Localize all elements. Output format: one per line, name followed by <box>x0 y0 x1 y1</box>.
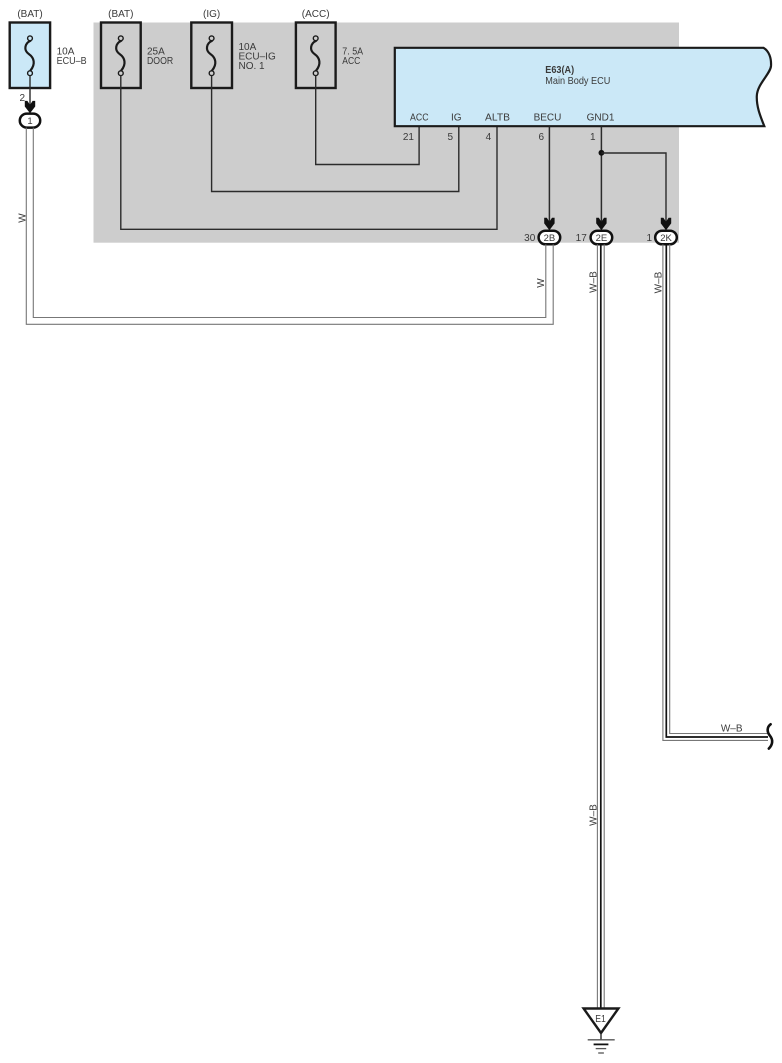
svg-text:2E: 2E <box>596 233 608 244</box>
svg-text:ACC: ACC <box>342 56 360 67</box>
svg-text:ECU–B: ECU–B <box>57 56 87 67</box>
svg-text:IG: IG <box>451 113 462 124</box>
svg-text:21: 21 <box>403 132 415 143</box>
svg-text:W–B: W–B <box>721 724 743 735</box>
svg-text:1: 1 <box>590 132 596 143</box>
svg-text:DOOR: DOOR <box>147 56 173 67</box>
svg-text:2: 2 <box>19 93 25 104</box>
svg-text:30: 30 <box>524 233 536 244</box>
svg-text:W: W <box>18 213 29 223</box>
svg-text:1: 1 <box>27 116 32 127</box>
svg-text:W–B: W–B <box>654 271 665 293</box>
svg-text:W–B: W–B <box>588 804 599 826</box>
svg-text:17: 17 <box>576 233 588 244</box>
svg-text:2K: 2K <box>660 233 672 244</box>
svg-text:5: 5 <box>447 132 453 143</box>
svg-text:ALTB: ALTB <box>485 113 510 124</box>
svg-text:(BAT): (BAT) <box>108 9 133 20</box>
svg-text:ACC: ACC <box>410 113 429 124</box>
svg-text:BECU: BECU <box>534 113 562 124</box>
svg-text:GND1: GND1 <box>587 113 615 124</box>
svg-text:NO. 1: NO. 1 <box>239 61 266 72</box>
svg-text:E1: E1 <box>595 1014 606 1025</box>
svg-text:W: W <box>536 278 547 288</box>
svg-text:4: 4 <box>486 132 492 143</box>
svg-text:1: 1 <box>646 233 652 244</box>
svg-text:(IG): (IG) <box>203 9 220 20</box>
svg-text:W–B: W–B <box>588 271 599 293</box>
svg-text:Main Body ECU: Main Body ECU <box>545 75 610 87</box>
svg-text:6: 6 <box>538 132 544 143</box>
svg-text:(ACC): (ACC) <box>302 9 330 20</box>
svg-text:2B: 2B <box>544 233 556 244</box>
svg-text:(BAT): (BAT) <box>17 9 42 20</box>
